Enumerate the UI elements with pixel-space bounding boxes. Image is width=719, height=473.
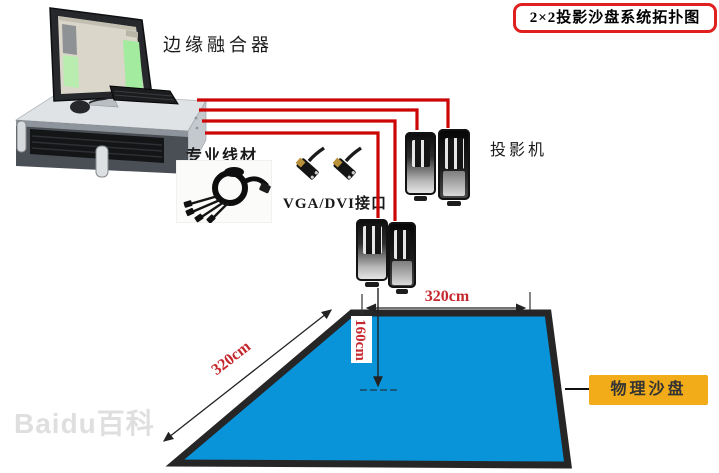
- server-vent-grille: [30, 129, 164, 163]
- cable-photo: [176, 160, 272, 223]
- screen-toolbar: [58, 16, 136, 31]
- diagram-canvas: 2×2投影沙盘系统拓扑图 边缘融合器 专业线材 VGA/DVI接口 投影机: [0, 0, 719, 473]
- monitor-bezel: [50, 8, 152, 101]
- screen-green-block-right: [123, 40, 143, 90]
- height-label-bg: [351, 316, 372, 363]
- label-professional-cable: 专业线材: [186, 142, 258, 166]
- dimension-top-width: 320cm: [425, 288, 470, 305]
- cable-wrap: [224, 167, 244, 177]
- cable-line-1: [197, 100, 448, 128]
- cable-coil: [215, 173, 245, 203]
- server-handle-left: [17, 121, 26, 152]
- keyboard: [110, 86, 178, 104]
- dimension-line-diagonal: [164, 310, 331, 441]
- screen-small-panel: [126, 30, 138, 38]
- sand-table-surface: [175, 313, 568, 465]
- projector-vents: [363, 226, 382, 253]
- dimension-left-depth: 320cm: [208, 338, 254, 379]
- server-top-face: [16, 93, 206, 131]
- label-projector: 投影机: [490, 136, 547, 160]
- projector-top-right: [438, 129, 470, 200]
- dimension-height: 160cm: [352, 319, 368, 361]
- projector-panel: [443, 171, 465, 197]
- screen-gray-panel: [62, 24, 77, 55]
- diagram-title: 2×2投影沙盘系统拓扑图: [513, 3, 717, 33]
- label-physical-sand-table: 物理沙盘: [589, 375, 708, 405]
- projector-vents: [445, 138, 464, 169]
- projector-panel: [392, 261, 411, 285]
- mouse-cable: [89, 97, 111, 103]
- projector-vents: [412, 140, 430, 168]
- cable-end-connector: [259, 182, 271, 193]
- watermark: Baidu百科: [14, 402, 155, 442]
- vga-dvi-connector-icon: [294, 146, 374, 192]
- server-handle-right: [96, 146, 108, 177]
- cable-line-2: [199, 110, 417, 130]
- label-edge-fusion-device: 边缘融合器: [163, 31, 273, 57]
- monitor-screen: [58, 16, 144, 94]
- projector-mid-left: [356, 219, 388, 281]
- mouse: [70, 101, 90, 114]
- screen-green-block-left: [63, 55, 79, 88]
- projector-top-left: [405, 132, 436, 195]
- projector-mid-right: [388, 222, 416, 288]
- monitor-stand: [89, 96, 118, 107]
- server-front-face: [16, 120, 188, 174]
- vga-connector-2: [331, 148, 361, 180]
- vga-connector-1: [294, 148, 324, 180]
- server-front-trim: [16, 120, 188, 137]
- label-vga-dvi-interface: VGA/DVI接口: [283, 192, 387, 213]
- projector-vents: [394, 230, 410, 259]
